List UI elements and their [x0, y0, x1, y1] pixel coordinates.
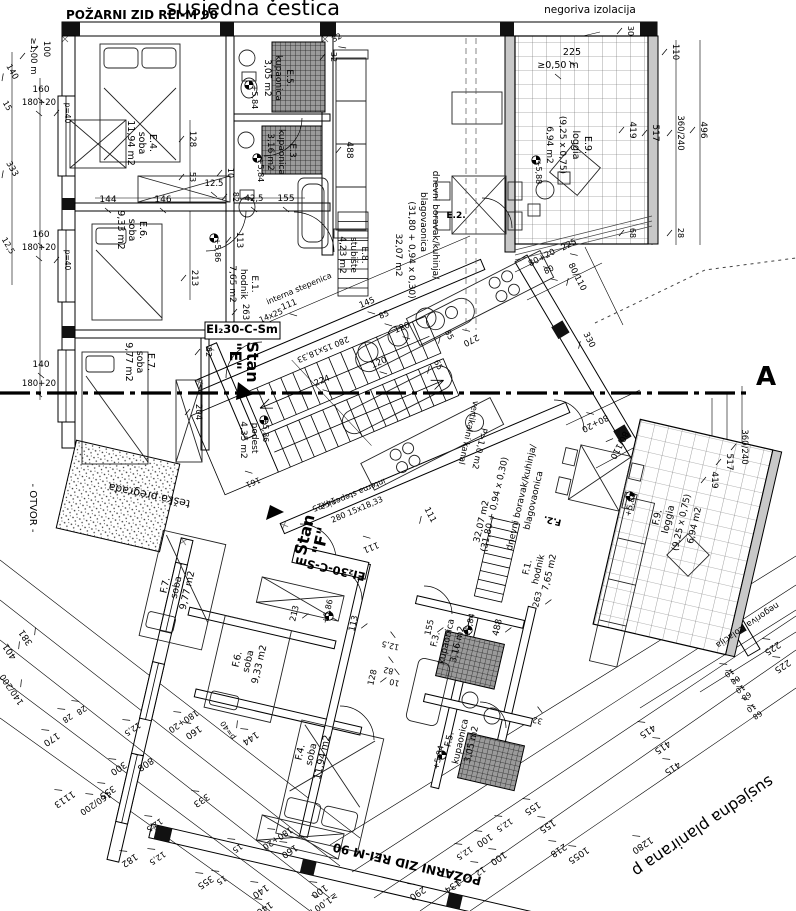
dim-tick — [389, 632, 396, 638]
dim-label: 113 — [347, 615, 360, 633]
dim-label: 12,5 — [381, 639, 400, 652]
dim-tick — [15, 641, 23, 649]
dim-tick — [57, 705, 65, 713]
dim-tick — [488, 845, 496, 853]
dim-label: 155 — [522, 799, 542, 817]
dim-tick — [662, 755, 670, 763]
dim-tick — [144, 812, 152, 820]
dim-label: 218 — [548, 841, 568, 859]
floor-plan-page: susjedna česticaPOŽARNI ZID REI-M 90nego… — [0, 0, 796, 911]
dim-tick — [772, 653, 780, 661]
dim-label: 496 — [698, 121, 708, 138]
dim-tick — [545, 598, 551, 605]
elevation-label: +5,86 — [320, 598, 334, 624]
stair-label: podest — [249, 423, 259, 454]
dim-tick — [667, 230, 672, 236]
dim-tick — [380, 369, 387, 376]
room-label: hodnik — [238, 269, 248, 300]
stair-label: 4,35 m2 — [238, 421, 248, 458]
dim-label: 82 — [231, 192, 240, 202]
dim-label: 30 — [626, 26, 635, 36]
opening-label: - OTVOR - — [27, 483, 38, 532]
room-label: kupaonica — [273, 55, 283, 101]
dim-label: 128 — [366, 669, 379, 687]
dim-tick — [108, 755, 116, 763]
dim-tick — [36, 111, 42, 116]
dim-tick — [505, 626, 511, 633]
dim-label: 155 — [537, 817, 557, 835]
dim-label: 12,5 — [0, 236, 17, 256]
dim-label: 415 — [652, 738, 672, 756]
dim-tick — [195, 869, 203, 877]
dim-label: 12.5 — [205, 179, 224, 189]
section-mark: A — [756, 362, 776, 392]
dim-label: 160 — [32, 85, 49, 95]
dim-label: 28 — [676, 228, 685, 238]
parcel-line — [595, 258, 796, 323]
dim-tick — [211, 192, 217, 197]
dim-tick — [536, 707, 543, 713]
dim-label: 381 — [17, 627, 35, 647]
dim-label: 225 — [563, 47, 581, 58]
dim-label: 111 — [361, 539, 380, 555]
room-label: E.9. — [582, 136, 593, 154]
closet-e4 — [70, 120, 230, 202]
walls-structure — [56, 22, 781, 911]
elevation-label: +5,84 — [250, 85, 259, 110]
elevation-label: +5,86 — [213, 238, 222, 263]
dim-tick — [233, 720, 241, 728]
dim-label: 12,5 — [147, 849, 167, 866]
fire-wall-label: POŽARNI ZID REI-M 90 — [66, 7, 218, 22]
dim-tick — [181, 275, 186, 281]
dim-label: 213 — [288, 605, 301, 623]
dim-label: 80+20 — [580, 412, 610, 434]
dim-label: p=40 — [218, 719, 237, 741]
room-label: E.6. — [137, 221, 148, 239]
dim-label: ≥0,50 m — [537, 60, 578, 71]
dim-label: 155 — [277, 194, 294, 204]
insulation-label: negoriva izolacija — [544, 4, 636, 16]
dim-label: 82 — [204, 347, 213, 357]
dim-label: 161 — [244, 475, 262, 489]
dim-label: 110 — [670, 44, 680, 60]
dim-tick — [250, 878, 258, 886]
room-label: 3,05 m2 — [262, 59, 272, 96]
dim-label: 263 — [531, 591, 544, 609]
dim-tick — [71, 697, 79, 705]
dim-tick — [564, 278, 571, 286]
room-label: soba — [134, 351, 145, 374]
dim-tick — [662, 49, 667, 55]
room-label: soba — [126, 219, 137, 242]
dim-label: 28 — [75, 703, 88, 716]
dim-label: 10 — [226, 168, 235, 178]
dim-label: 360/240 — [739, 429, 749, 464]
dim-label: p=40 — [63, 103, 72, 124]
dim-tick — [85, 790, 93, 798]
dim-label: 15 — [1, 99, 14, 112]
room-label: E.7. — [145, 353, 156, 371]
room-label: blagovaonica — [418, 192, 428, 252]
room-label: stubište — [348, 237, 359, 273]
dim-label: 140/200 — [0, 672, 26, 707]
room-label: 4,23 m2 — [337, 236, 347, 273]
dim-label: 32 — [329, 52, 338, 62]
dim-label: 360/240 — [675, 115, 685, 150]
room-label: 32,07 m2 — [393, 233, 403, 276]
dim-tick — [41, 726, 49, 734]
room-label: dnevni boravak/kuhinja/ — [430, 171, 440, 280]
dim-tick — [36, 256, 42, 261]
room-label: E.8. — [359, 246, 369, 263]
room-label: E.3. — [287, 143, 297, 160]
room-label: E.1. — [249, 275, 259, 292]
coffee-table — [452, 92, 502, 124]
dim-label: 180+20 — [22, 243, 56, 253]
dim-tick — [363, 534, 370, 541]
dim-tick — [336, 147, 341, 153]
dim-label: 140 — [254, 899, 274, 911]
dim-label: 12,5 — [454, 844, 474, 861]
stair-step — [482, 562, 509, 568]
dim-label: 488 — [344, 141, 354, 158]
dim-tick — [537, 813, 545, 821]
dim-tick — [38, 373, 44, 378]
room-label: 6,94 m2 — [544, 126, 554, 163]
dim-tick — [31, 627, 39, 635]
dim-label: 419 — [709, 471, 719, 488]
dim-label: ≥1,00 m — [28, 37, 38, 74]
dim-tick — [632, 832, 640, 840]
room-label: 9,33 m2 — [115, 210, 126, 249]
dim-tick — [54, 786, 62, 794]
dim-tick — [385, 321, 392, 328]
dim-tick — [267, 825, 275, 833]
stair-step — [476, 588, 503, 594]
dim-tick — [173, 708, 181, 716]
dim-label: 1055 — [566, 844, 591, 865]
dim-label: 100 — [41, 41, 51, 57]
elevation-label: +5,84 — [256, 158, 265, 183]
dim-label: 140 — [32, 360, 49, 370]
site-label: susjedna planirana p — [629, 772, 778, 881]
dim-label: 140 — [250, 882, 270, 900]
dim-label: 1113 — [52, 788, 77, 809]
room-label: E.5. — [284, 69, 294, 86]
dim-label: 28 — [61, 711, 74, 724]
dim-label: 12,5 — [494, 816, 514, 833]
dim-label: 128 — [187, 131, 197, 147]
dim-tick — [454, 840, 462, 848]
room-label: 11,94 m2 — [125, 120, 136, 166]
room-label: E.2. — [446, 211, 465, 221]
dim-tick — [462, 327, 470, 334]
dim-label: 15 — [215, 873, 228, 886]
dim-label: 111 — [422, 506, 438, 525]
dim-tick — [195, 349, 200, 355]
fire-door-label: EI₂30-C-Sm — [206, 322, 278, 336]
dim-tick — [470, 858, 478, 866]
dim-tick — [191, 787, 199, 795]
dim-label: 68 — [628, 228, 637, 238]
dim-label: 180+20 — [22, 379, 56, 389]
dim-tick — [667, 130, 672, 136]
dim-label: 42,5 — [245, 194, 264, 204]
dim-tick — [17, 679, 25, 687]
room-label: F.2. — [543, 513, 563, 527]
dim-label: 180+20 — [22, 98, 56, 108]
dim-label: 213 — [189, 270, 199, 286]
dim-label: 415 — [662, 759, 682, 777]
dim-label: 160 — [32, 230, 49, 240]
dim-tick — [652, 734, 660, 742]
stair-step — [478, 579, 505, 585]
dim-tick — [0, 73, 6, 81]
dim-tick — [97, 779, 105, 787]
dim-label: 144 — [99, 195, 116, 205]
dim-label: 170 — [41, 730, 61, 748]
dim-tick — [606, 436, 613, 444]
dim-tick — [690, 127, 695, 133]
dim-tick — [387, 657, 394, 663]
dim-label: 146 — [154, 195, 171, 205]
dim-label: 333 — [191, 791, 211, 809]
dim-label: 80/110 — [566, 261, 588, 292]
dim-label: 100 — [488, 849, 508, 867]
dim-label: 419 — [627, 121, 637, 138]
dim-tick — [179, 174, 184, 180]
room-label: loggia — [570, 131, 581, 160]
apartment-label: "E" — [226, 342, 245, 370]
dim-tick — [20, 53, 25, 59]
dim-tick — [245, 469, 252, 476]
stair-step — [484, 553, 511, 559]
dim-label: 182 — [119, 851, 139, 869]
dim-label: 225 — [762, 639, 782, 657]
dim-label: 65 — [432, 358, 445, 371]
dim-tick — [240, 725, 248, 733]
dim-label: 144 — [240, 729, 260, 747]
dim-tick — [0, 170, 6, 178]
dim-label: 82 — [382, 665, 394, 676]
dim-tick — [122, 716, 130, 724]
dim-tick — [548, 837, 556, 845]
dim-label: 113 — [234, 232, 244, 248]
dim-label: 120 — [370, 355, 389, 371]
dim-label: 100 — [474, 831, 494, 849]
dim-label: 204 — [193, 404, 203, 420]
dim-label: 32 — [531, 715, 543, 726]
dim-tick — [762, 635, 770, 643]
dim-label: 80 — [542, 263, 555, 276]
dim-tick — [147, 845, 155, 853]
room-label: 3,16 m2 — [265, 133, 275, 170]
stair-step — [480, 570, 507, 576]
dim-label: 333 — [3, 159, 20, 178]
dim-tick — [568, 842, 576, 850]
dim-tick — [0, 247, 2, 255]
dim-label: 10 — [388, 677, 400, 688]
dim-tick — [361, 622, 367, 629]
room-label: E.4. — [147, 134, 158, 152]
room-label: 7,65 m2 — [227, 265, 237, 302]
stair-label: interna stepenica — [265, 271, 333, 307]
dim-tick — [586, 410, 594, 417]
dim-label: p=40 — [63, 250, 72, 271]
dim-tick — [0, 107, 1, 115]
dim-label: 80+20 — [527, 247, 557, 269]
room-label: (9,25 x 0,75) — [557, 116, 567, 174]
elevation-label: +5,86 — [261, 418, 270, 443]
dim-tick — [570, 251, 578, 258]
dim-label: 415 — [637, 722, 657, 740]
dim-label: 517 — [724, 453, 734, 470]
dim-tick — [217, 170, 222, 176]
dim-label: 401 — [1, 641, 19, 661]
dim-label: 355 — [195, 873, 215, 891]
room-label: soba — [136, 132, 147, 155]
room-label: kupaonica — [276, 129, 286, 175]
dim-label: 263 — [240, 304, 250, 320]
dim-label: 140 — [3, 62, 20, 81]
dim-label: 53 — [188, 172, 197, 182]
dim-label: 517 — [650, 124, 660, 141]
dim-label: 224 — [313, 373, 332, 389]
dim-label: 270 — [461, 332, 480, 348]
floor-plan-drawing: susjedna česticaPOŽARNI ZID REI-M 90nego… — [0, 0, 796, 911]
dim-tick — [417, 516, 424, 524]
room-label: 9,77 m2 — [123, 342, 134, 381]
dim-label: 330 — [581, 331, 597, 350]
elevation-label: +5,88 — [534, 160, 543, 185]
dim-tick — [380, 676, 386, 683]
room-label: (31,80 + 0,94 x 0,30) — [406, 201, 416, 298]
dim-tick — [425, 366, 432, 374]
